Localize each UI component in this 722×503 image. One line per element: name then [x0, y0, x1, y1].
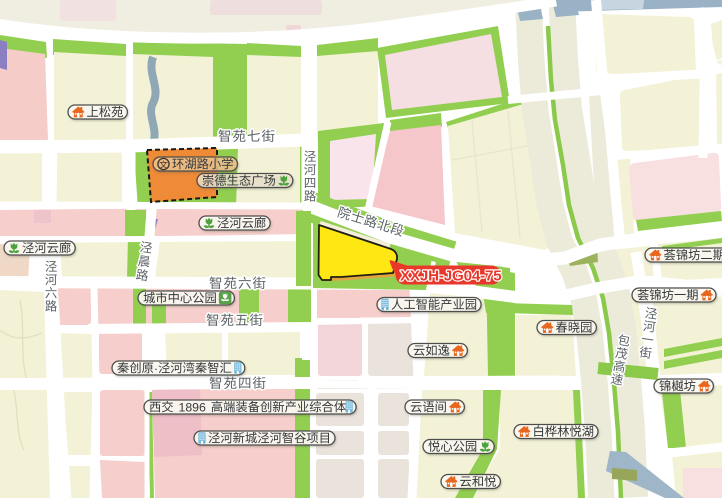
svg-text:·: ·	[154, 361, 158, 375]
svg-text:XXJH-JG04-75: XXJH-JG04-75	[400, 268, 502, 285]
svg-text:1896: 1896	[179, 400, 207, 414]
